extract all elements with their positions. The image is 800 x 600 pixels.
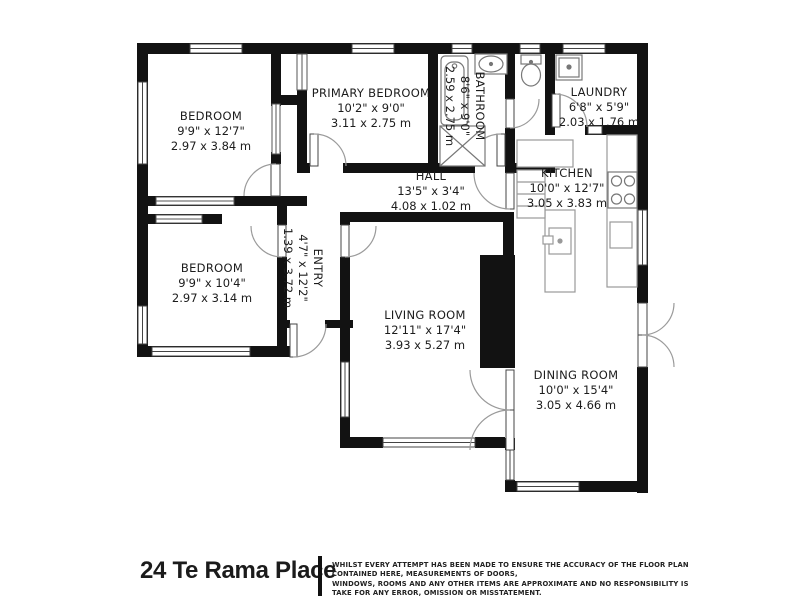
room-label-bedroom-1: BEDROOM 9'9" x 12'7" 2.97 x 3.84 m (171, 109, 251, 155)
floorplan-page: BEDROOM 9'9" x 12'7" 2.97 x 3.84 m PRIMA… (0, 0, 800, 600)
disclaimer: WHILST EVERY ATTEMPT HAS BEEN MADE TO EN… (332, 561, 697, 600)
room-label-hall: HALL 13'5" x 3'4" 4.08 x 1.02 m (391, 169, 471, 215)
footer-divider (318, 556, 322, 596)
double-door-upper (506, 370, 514, 410)
room-label-laundry: LAUNDRY 6'8" x 5'9" 2.03 x 1.76 m (559, 85, 639, 131)
primary-bedroom-door (310, 134, 318, 166)
room-label-kitchen: KITCHEN 10'0" x 12'7" 3.05 x 3.83 m (527, 166, 607, 212)
toilet (521, 55, 541, 86)
kitchen-island (543, 210, 575, 292)
front-door (290, 324, 297, 357)
disclaimer-line-1: WHILST EVERY ATTEMPT HAS BEEN MADE TO EN… (332, 561, 697, 580)
room-label-entry: ENTRY 4'7" x 12'2" 1.39 x 3.72 m (279, 228, 325, 308)
bathroom-door (497, 134, 505, 166)
kitchen-door (506, 173, 514, 209)
french-door-lower (638, 335, 647, 367)
room-label-primary-bedroom: PRIMARY BEDROOM 10'2" x 9'0" 3.11 x 2.75… (312, 86, 431, 132)
french-door-upper (638, 303, 647, 335)
bedroom1-door (271, 164, 280, 196)
kitchen-counter (607, 135, 637, 287)
room-label-living-room: LIVING ROOM 12'11" x 17'4" 3.93 x 5.27 m (384, 308, 466, 354)
wc-door (506, 99, 514, 128)
living-room-door (341, 225, 349, 257)
double-door-lower (506, 410, 514, 450)
disclaimer-line-2: WINDOWS, ROOMS AND ANY OTHER ITEMS ARE A… (332, 580, 697, 599)
room-label-bedroom-2: BEDROOM 9'9" x 10'4" 2.97 x 3.14 m (172, 261, 252, 307)
laundry-tub (556, 55, 582, 80)
plan-title: 24 Te Rama Place (140, 557, 336, 585)
room-label-dining-room: DINING ROOM 10'0" x 15'4" 3.05 x 4.66 m (534, 368, 619, 414)
room-label-bathroom: BATHROOM 8'6" x 9'0" 2.59 x 2.75 m (441, 66, 487, 146)
stove (608, 172, 637, 208)
